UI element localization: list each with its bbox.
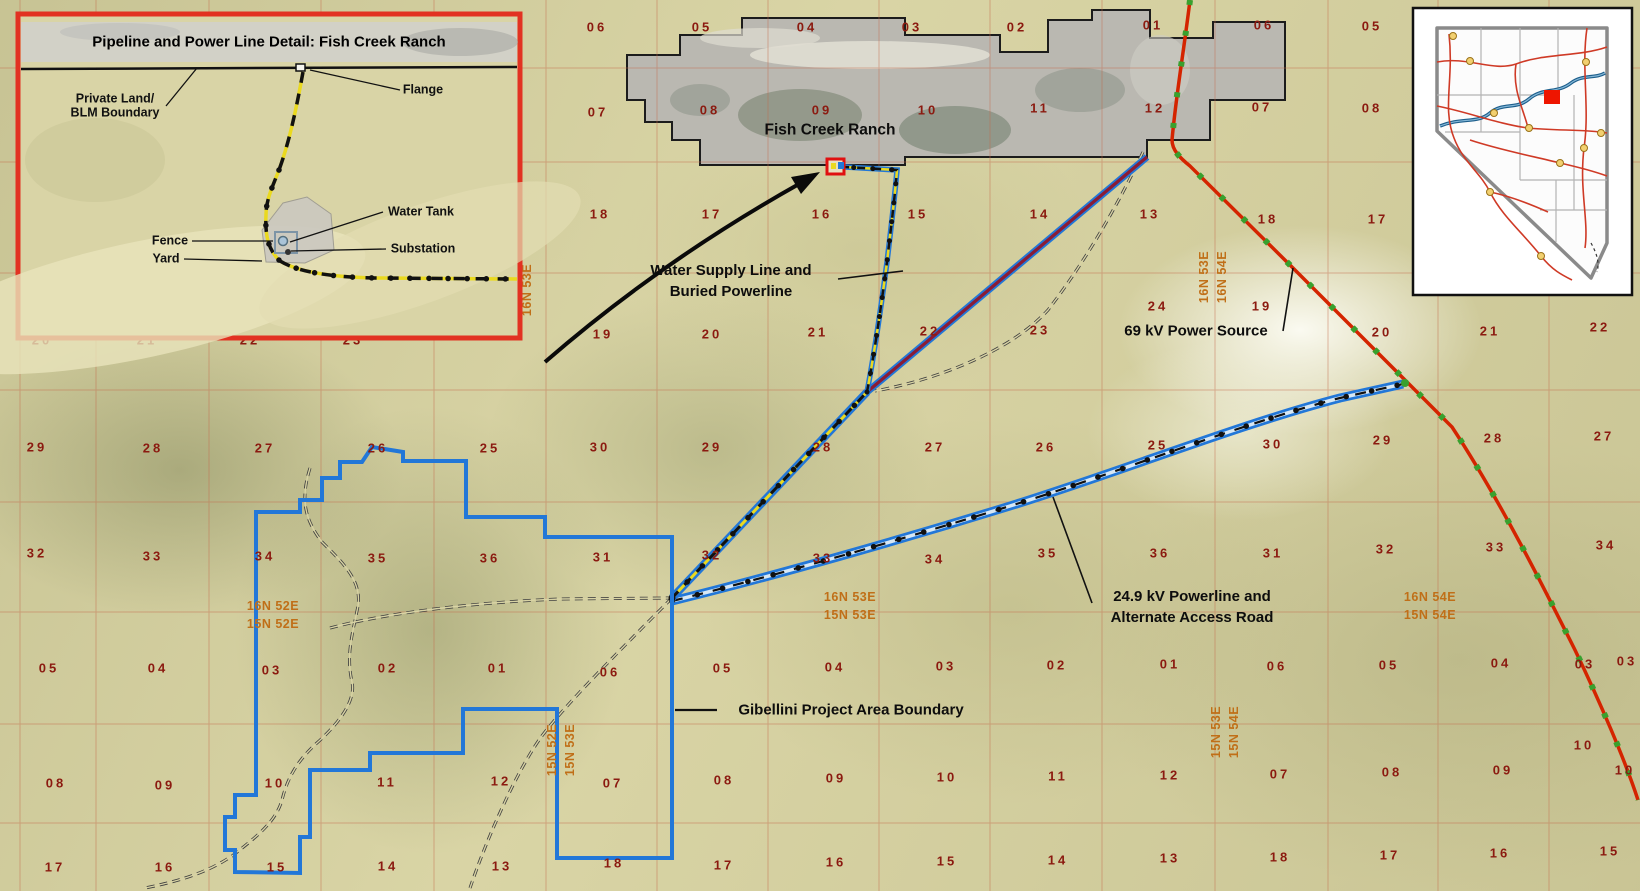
substation-marker (285, 249, 291, 255)
inset-graphics (0, 0, 1640, 891)
detail-inset (0, 14, 596, 405)
flange-marker (296, 64, 305, 71)
water-tank-marker (279, 237, 288, 246)
nevada-project-location-marker (1544, 90, 1560, 104)
map-stage: Fish Creek Ranch Water Supply Line and B… (0, 0, 1640, 891)
nevada-locator-inset (1413, 8, 1632, 295)
